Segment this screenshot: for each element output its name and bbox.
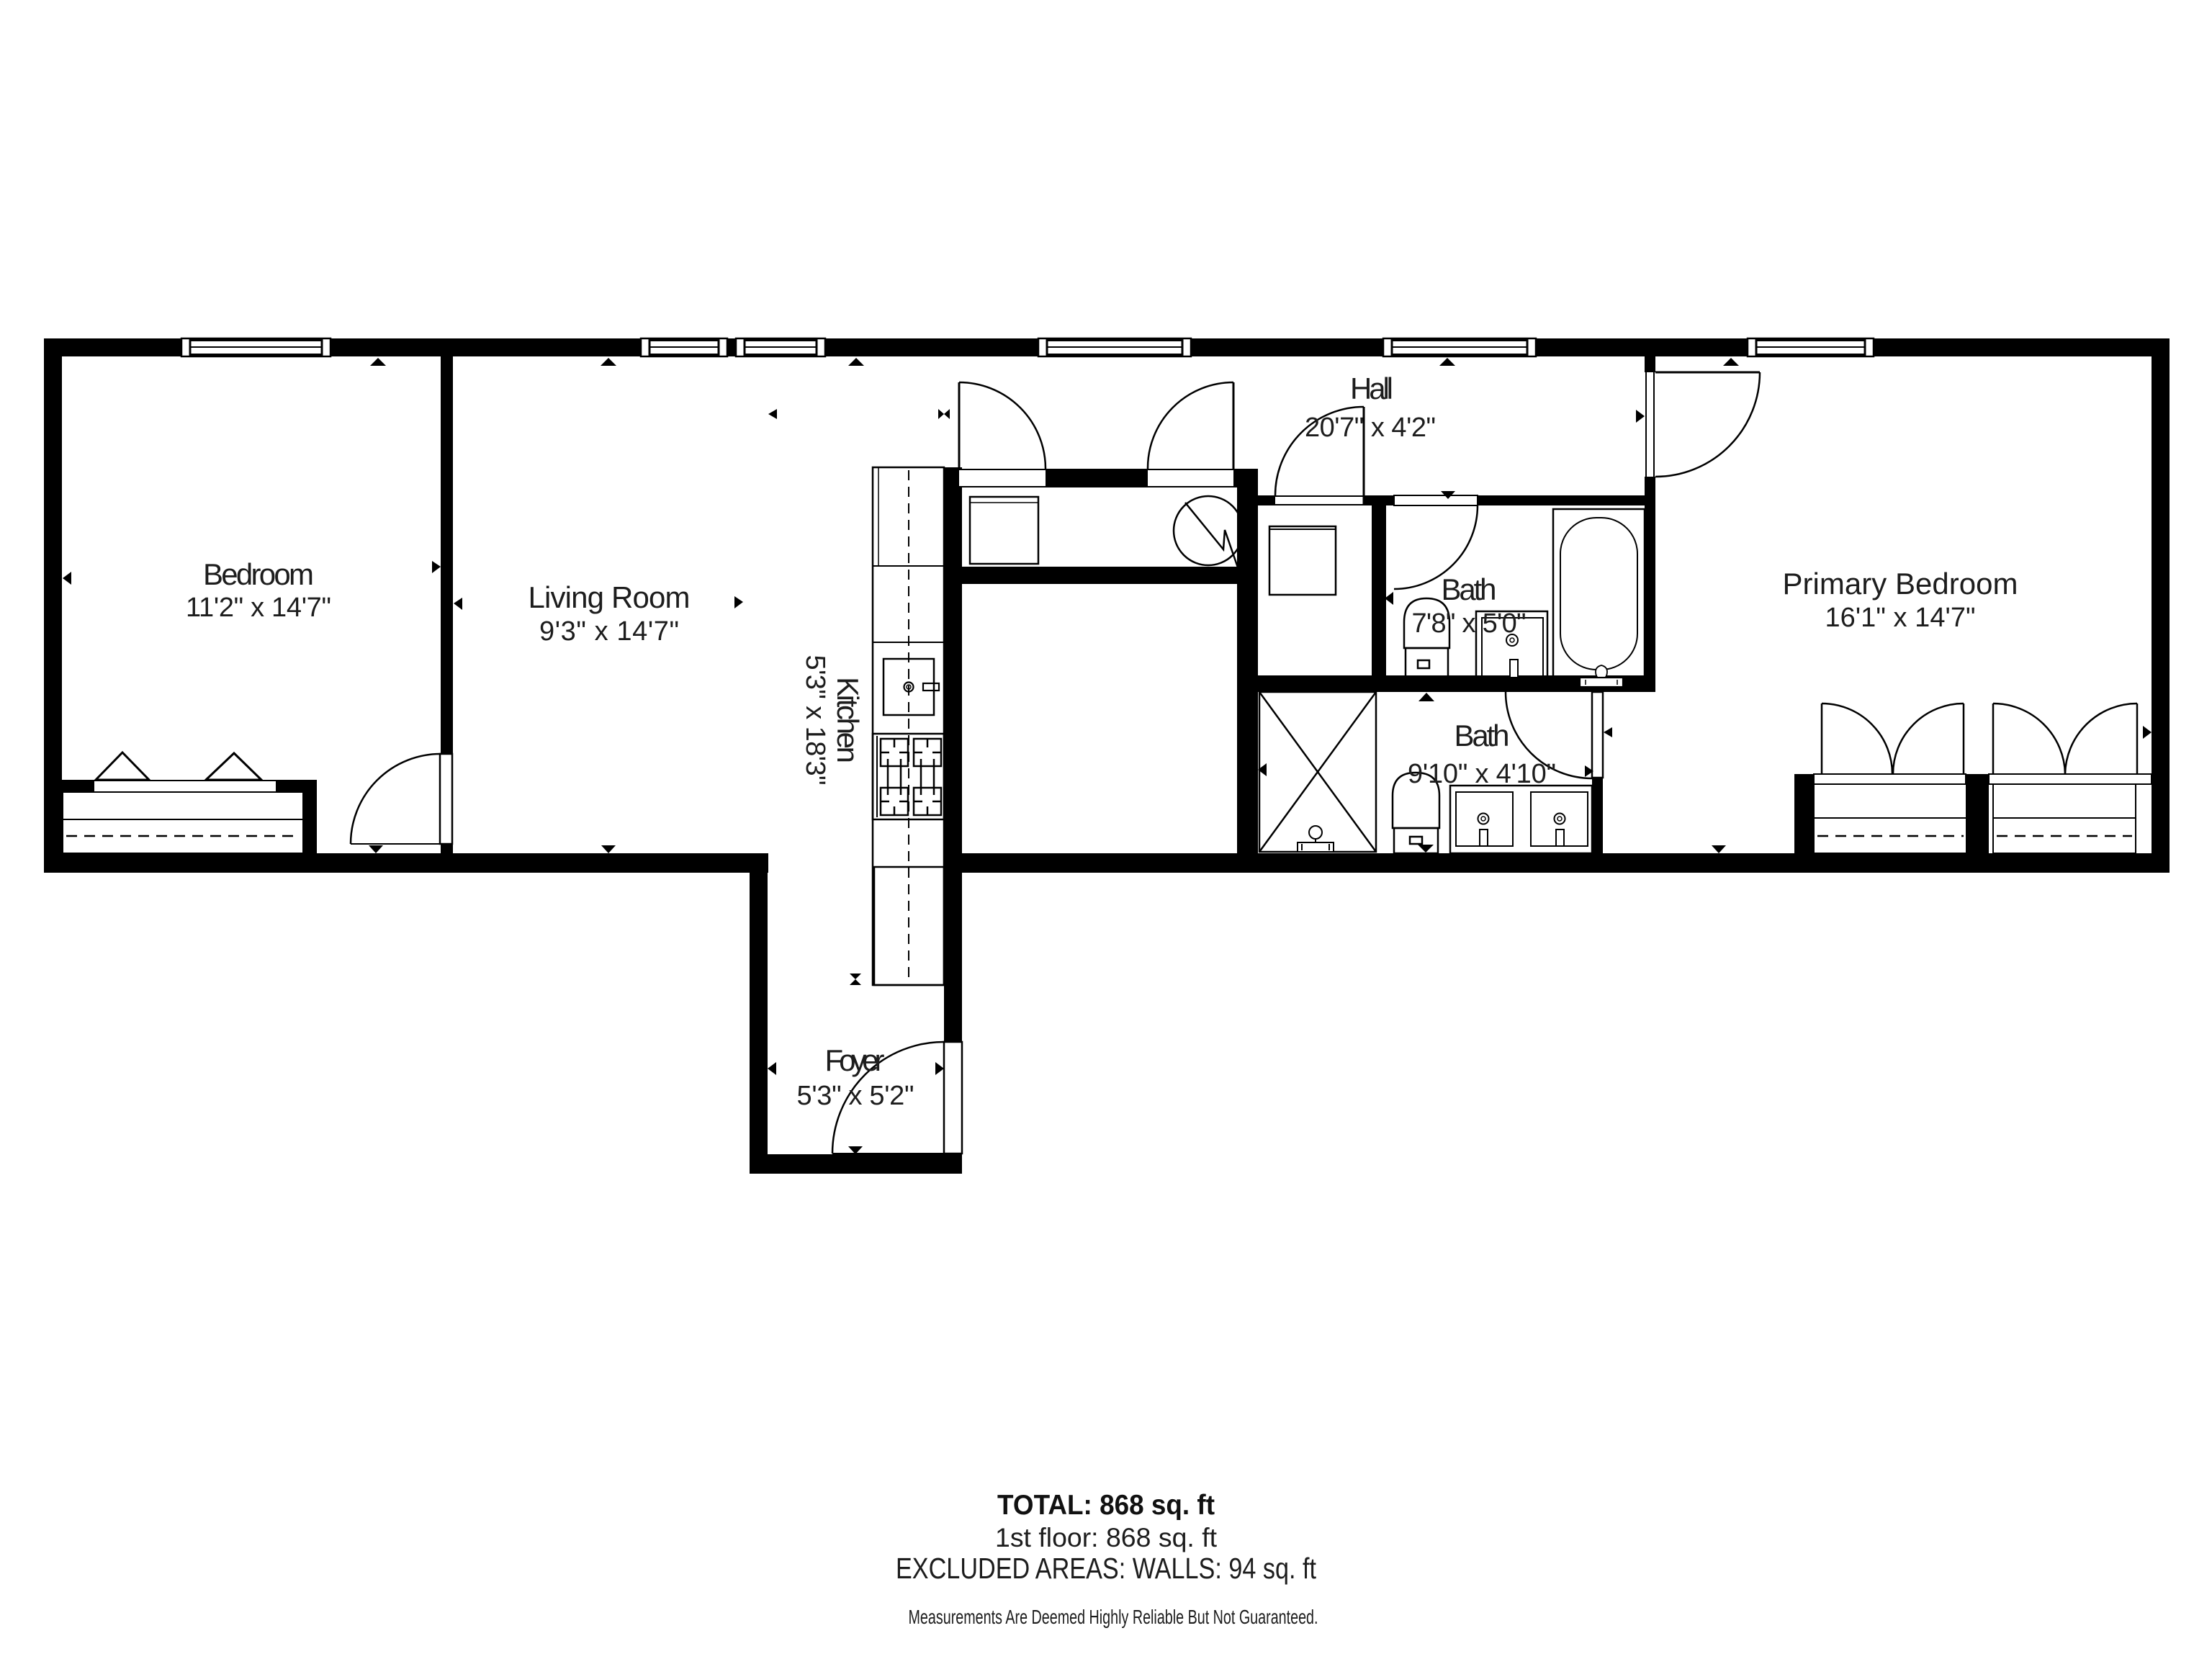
svg-text:20'7" x 4'2": 20'7" x 4'2" [1305,413,1436,443]
svg-text:TOTAL: 868 sq. ft: TOTAL: 868 sq. ft [997,1490,1215,1521]
svg-text:5'3" x 5'2": 5'3" x 5'2" [797,1081,914,1111]
svg-text:5'3" x 18'3": 5'3" x 18'3" [800,655,830,786]
svg-text:Foyer: Foyer [825,1043,885,1077]
svg-text:9'10" x 4'10": 9'10" x 4'10" [1408,759,1556,789]
svg-text:Bedroom: Bedroom [203,557,314,591]
svg-text:9'3" x 14'7": 9'3" x 14'7" [539,616,679,647]
svg-text:Primary Bedroom: Primary Bedroom [1783,567,2018,601]
svg-text:Living Room: Living Room [529,580,691,614]
svg-text:EXCLUDED AREAS: WALLS: 94 sq.: EXCLUDED AREAS: WALLS: 94 sq. ft [896,1552,1317,1585]
svg-text:Bath: Bath [1455,719,1510,752]
svg-text:Measurements Are Deemed Highly: Measurements Are Deemed Highly Reliable … [909,1606,1318,1628]
svg-text:11'2" x 14'7": 11'2" x 14'7" [186,593,331,623]
svg-text:7'8" x 5'0": 7'8" x 5'0" [1412,608,1527,639]
svg-text:16'1" x 14'7": 16'1" x 14'7" [1825,603,1976,633]
svg-text:1st floor: 868 sq. ft: 1st floor: 868 sq. ft [995,1523,1218,1552]
svg-text:Kitchen: Kitchen [831,677,865,763]
svg-text:Hall: Hall [1350,372,1393,405]
svg-text:Bath: Bath [1442,572,1497,606]
